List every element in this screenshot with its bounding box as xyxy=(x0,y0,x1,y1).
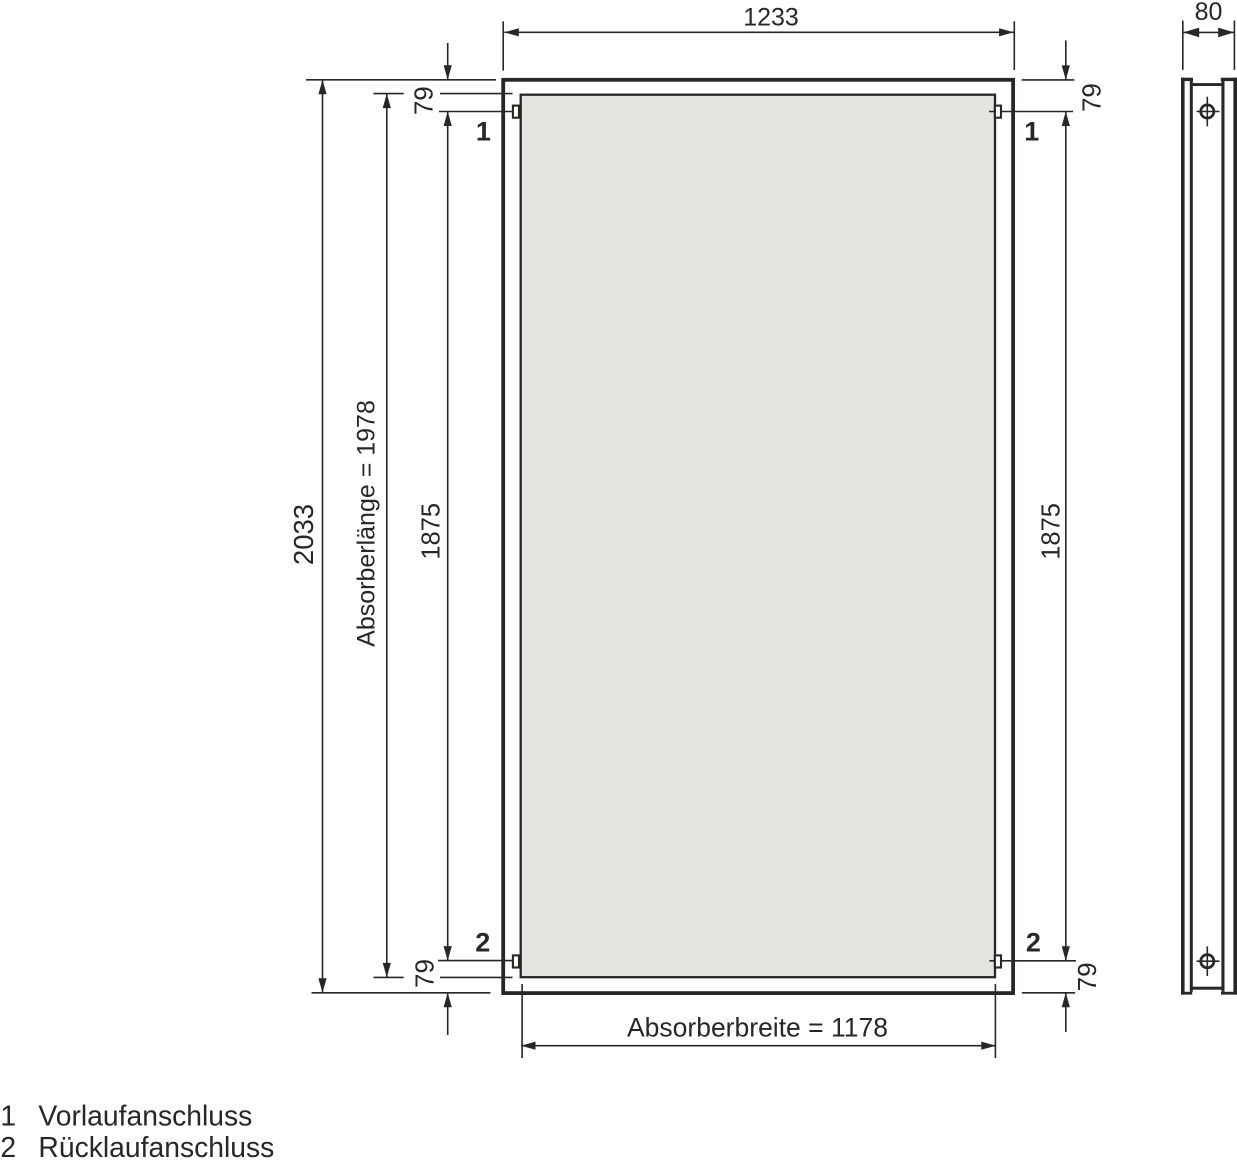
svg-text:1875: 1875 xyxy=(418,503,446,560)
svg-text:2: 2 xyxy=(0,1131,16,1163)
svg-text:80: 80 xyxy=(1195,0,1223,26)
svg-text:1: 1 xyxy=(1024,117,1039,147)
svg-text:2: 2 xyxy=(475,928,490,958)
svg-text:Absorberbreite = 1178: Absorberbreite = 1178 xyxy=(627,1013,888,1043)
svg-text:79: 79 xyxy=(1077,83,1107,112)
svg-text:79: 79 xyxy=(409,86,439,115)
svg-text:1: 1 xyxy=(0,1100,16,1132)
svg-text:Absorberlänge = 1978: Absorberlänge = 1978 xyxy=(353,400,381,647)
svg-text:1875: 1875 xyxy=(1038,503,1066,560)
svg-text:79: 79 xyxy=(410,959,440,988)
svg-text:79: 79 xyxy=(1072,962,1102,991)
svg-text:Rücklaufanschluss: Rücklaufanschluss xyxy=(38,1131,274,1163)
svg-text:2033: 2033 xyxy=(288,504,319,565)
svg-text:Vorlaufanschluss: Vorlaufanschluss xyxy=(38,1100,252,1132)
svg-text:1: 1 xyxy=(476,117,491,147)
svg-text:1233: 1233 xyxy=(743,4,799,32)
svg-text:2: 2 xyxy=(1026,928,1041,958)
